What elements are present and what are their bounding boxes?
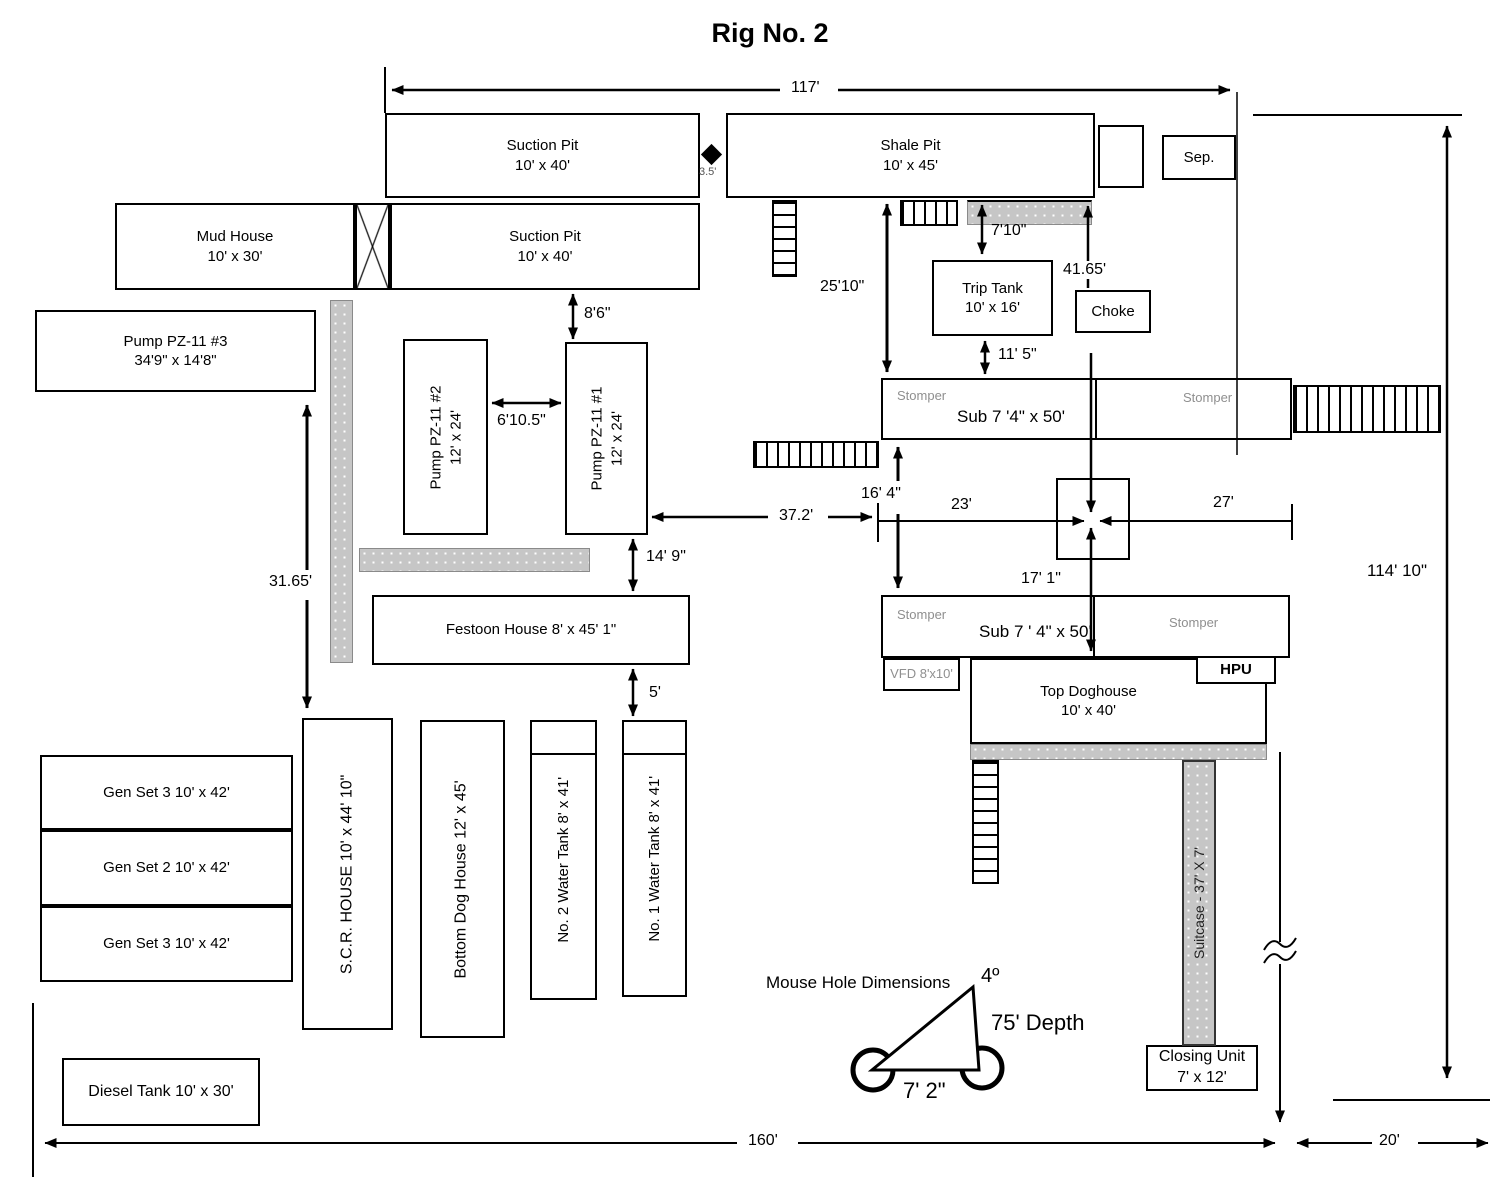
dim-overall-width: 117' [788,79,823,97]
connector-diamond-icon [701,144,722,165]
separator-box: Sep. [1162,135,1236,180]
dim-suction-to-pump1: 8'6" [581,305,614,323]
dim-shale-to-triptank: 7'10" [988,222,1029,240]
hpu-box: HPU [1196,656,1276,684]
stomper-label: Stomper [1183,390,1232,407]
dim-triptank-to-sub: 11' 5" [995,346,1040,364]
walkway-sub-upper-left [753,441,879,468]
dim-base-width: 160' [745,1132,781,1150]
trip-tank-box: Trip Tank 10' x 16' [932,260,1053,336]
dim-choke-line: 41.65' [1060,261,1109,279]
dim-pump3-to-genset: 31.65' [266,573,315,591]
gen-set-1-label: Gen Set 3 10' x 42' [103,783,230,803]
gen-set-3-label: Gen Set 3 10' x 42' [103,934,230,954]
vfd-label: VFD 8'x10' [890,666,953,683]
suction-pit-2-size: 10' x 40' [518,247,573,267]
stomper-label: Stomper [1169,615,1218,632]
dim-pump1-to-festoon: 14' 9" [643,548,689,566]
scr-house-box: S.C.R. HOUSE 10' x 44' 10" [302,718,393,1030]
hpu-label: HPU [1220,660,1252,680]
pump-pz11-3-box: Pump PZ-11 #3 34'9" x 14'8" [35,310,316,392]
pump-pz11-3-label: Pump PZ-11 #3 [124,332,228,352]
walkway-strip-doghouse [970,744,1267,760]
walkway-sub-upper-right [1293,385,1441,433]
walkway-strip-horizontal [359,548,590,572]
gen-set-row-1: Gen Set 3 10' x 42' [40,755,293,830]
wellhead-box [1056,478,1130,560]
gen-set-row-3: Gen Set 3 10' x 42' [40,906,293,982]
page-title: Rig No. 2 [620,18,920,49]
sub-upper-divider [1095,380,1097,438]
separator-label: Sep. [1184,148,1215,168]
suction-pit-1-label: Suction Pit [507,136,579,156]
suitcase-strip: Suitcase - 37' X 7' [1182,760,1216,1046]
bottom-doghouse-label: Bottom Dog House 12' x 45' [452,780,473,978]
pump-pz11-1-box: Pump PZ-11 #1 12' x 24' [565,342,648,535]
closing-unit-size: 7' x 12' [1177,1068,1227,1089]
pump-pz11-2-size: 12' x 24' [446,385,466,489]
stairs-top-doghouse [972,760,999,884]
water-tank-1-divider [624,753,685,755]
dim-sub-to-sub: 16' 4" [858,485,904,503]
mouse-hole-depth: 75' Depth [988,1010,1088,1036]
top-doghouse-label: Top Doghouse [1040,682,1137,702]
dim-pit-gap: 3.5' [696,166,719,178]
closing-unit-box: Closing Unit 7' x 12' [1146,1045,1258,1091]
water-tank-2-box: No. 2 Water Tank 8' x 41' [530,720,597,1000]
walkway-strip-shale [967,200,1092,225]
dim-well-right: 27' [1210,494,1237,512]
dim-well-to-sub-lower: 17' 1" [1018,570,1064,588]
mud-house-size: 10' x 30' [208,247,263,267]
festoon-house-box: Festoon House 8' x 45' 1" [372,595,690,665]
rig-layout-diagram: Rig No. 2 Suction Pit 10' x 40' Shale Pi… [0,0,1500,1200]
dim-shale-to-sub: 25'10" [817,278,867,296]
sub-upper-label: Sub 7 '4" x 50' [957,406,1065,428]
vfd-box: VFD 8'x10' [883,658,960,691]
water-tank-1-label: No. 1 Water Tank 8' x 41' [645,776,665,942]
dim-pump1-to-well: 37.2' [776,507,816,525]
suction-pit-1-size: 10' x 40' [515,156,570,176]
suction-pit-2-box: Suction Pit 10' x 40' [390,203,700,290]
dim-overall-height: 114' 10" [1364,561,1430,581]
shale-pit-label: Shale Pit [880,136,940,156]
choke-label: Choke [1091,302,1134,322]
mud-house-label: Mud House [197,227,274,247]
water-tank-2-divider [532,753,595,755]
shale-pit-box: Shale Pit 10' x 45' [726,113,1095,198]
stairs-shale-left [772,200,797,277]
stomper-label: Stomper [897,388,946,405]
pump-pz11-2-label: Pump PZ-11 #2 [426,385,446,489]
trip-tank-size: 10' x 16' [965,298,1020,318]
mouse-hole-title: Mouse Hole Dimensions [763,973,953,993]
shale-pit-size: 10' x 45' [883,156,938,176]
dim-base-extension: 20' [1376,1132,1403,1150]
pump-pz11-2-box: Pump PZ-11 #2 12' x 24' [403,339,488,535]
pump-pz11-1-size: 12' x 24' [607,387,627,491]
walkway-strip-vertical [330,300,353,663]
mouse-hole-angle: 4º [978,965,1002,988]
dim-pump-gap: 6'10.5" [494,412,549,430]
stomper-label: Stomper [897,607,946,624]
suitcase-label: Suitcase - 37' X 7' [1191,847,1207,959]
mud-house-box: Mud House 10' x 30' [115,203,355,290]
gen-set-row-2: Gen Set 2 10' x 42' [40,830,293,906]
suction-pit-1-box: Suction Pit 10' x 40' [385,113,700,198]
sub-lower-box: Stomper Sub 7 ' 4" x 50' Stomper [881,595,1290,658]
crossover-box [355,203,390,290]
festoon-house-label: Festoon House 8' x 45' 1" [446,620,616,640]
pump-pz11-1-label: Pump PZ-11 #1 [587,387,607,491]
scr-house-label: S.C.R. HOUSE 10' x 44' 10" [337,774,358,973]
suction-pit-2-label: Suction Pit [509,227,581,247]
closing-unit-label: Closing Unit [1159,1047,1245,1068]
bottom-doghouse-box: Bottom Dog House 12' x 45' [420,720,505,1038]
walkway-shale-mid [900,200,958,226]
dim-well-left: 23' [948,496,975,514]
diesel-tank-label: Diesel Tank 10' x 30' [88,1082,233,1103]
top-doghouse-size: 10' x 40' [1040,701,1137,721]
trip-tank-label: Trip Tank [962,279,1023,299]
diesel-tank-box: Diesel Tank 10' x 30' [62,1058,260,1126]
choke-box: Choke [1075,290,1151,333]
water-tank-1-box: No. 1 Water Tank 8' x 41' [622,720,687,997]
mouse-hole-width: 7' 2" [900,1078,949,1104]
gen-set-2-label: Gen Set 2 10' x 42' [103,858,230,878]
sub-upper-box: Stomper Sub 7 '4" x 50' Stomper [881,378,1292,440]
dim-festoon-to-tank: 5' [646,684,664,702]
sub-lower-divider [1093,597,1095,656]
water-tank-2-label: No. 2 Water Tank 8' x 41' [554,777,574,943]
sub-lower-label: Sub 7 ' 4" x 50' [979,621,1092,643]
aux-box [1098,125,1144,188]
pump-pz11-3-size: 34'9" x 14'8" [134,351,216,371]
